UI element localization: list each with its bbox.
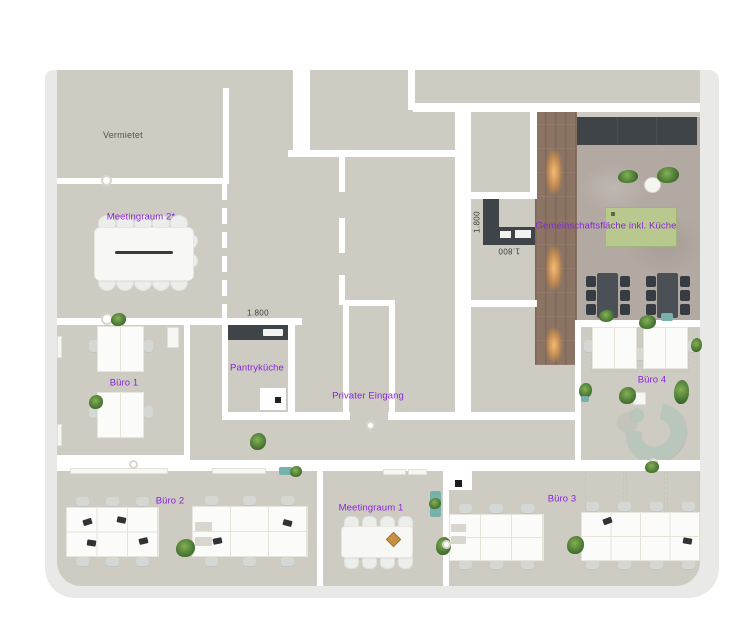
desk-pair — [98, 327, 143, 371]
floor-plan-page: Vermietet Meetingraum 2* Büro 1 — [0, 0, 754, 631]
plant — [111, 313, 126, 326]
window-sill — [57, 424, 62, 446]
window-sill — [408, 469, 427, 475]
room-label-meetingraum1: Meetingraum 1 — [339, 503, 404, 514]
vestibule-wall — [343, 300, 395, 306]
room-label-gemeinschaftsflaeche: Gemeinschaftsfläche inkl. Küche — [536, 221, 677, 232]
plant — [290, 466, 302, 477]
glass-wall-segment — [222, 208, 227, 224]
wall — [413, 103, 700, 112]
room-label-meetingraum2: Meetingraum 2* — [107, 212, 175, 223]
office-chair — [89, 340, 98, 353]
office-chair — [586, 560, 599, 570]
dark-chair — [646, 290, 656, 301]
office-chair — [243, 557, 256, 567]
desk-return — [195, 522, 212, 531]
core-wall-segment — [339, 157, 345, 192]
room-label-privater-eingang: Privater Eingang — [332, 391, 404, 402]
wall — [288, 150, 470, 157]
wall — [57, 318, 302, 325]
plant — [691, 338, 702, 352]
office-chair — [586, 502, 599, 512]
plant — [619, 387, 636, 404]
plant — [250, 433, 266, 450]
plant — [599, 310, 614, 322]
office-chair — [144, 406, 153, 419]
dark-chair — [620, 276, 630, 287]
desk-bank — [193, 507, 307, 556]
office-chair — [650, 560, 663, 570]
room-label-buero4: Büro 4 — [638, 375, 667, 386]
dark-chair — [586, 304, 596, 315]
kitchen-counter-top — [577, 117, 697, 145]
meeting-table — [342, 527, 412, 557]
office-chair — [76, 497, 89, 507]
door-knob — [101, 175, 112, 186]
door-knob — [442, 540, 451, 549]
pantry-sink — [263, 329, 283, 336]
window-sill — [57, 336, 62, 358]
office-chair — [618, 502, 631, 512]
window-sill — [70, 468, 168, 474]
plant — [674, 380, 689, 404]
ceiling-light-glow — [546, 150, 562, 194]
office-chair — [136, 497, 149, 507]
glass-wall-segment — [222, 232, 227, 248]
dimension-label-kitchen-vertical: 1.800 — [473, 211, 482, 233]
room-label-buero2: Büro 2 — [156, 496, 185, 507]
office-chair — [459, 560, 472, 570]
dark-chair — [646, 304, 656, 315]
floor-plan: Vermietet Meetingraum 2* Büro 1 — [45, 70, 719, 598]
dark-chair — [680, 290, 690, 301]
office-chair — [521, 560, 534, 570]
office-chair — [106, 497, 119, 507]
desk-bank — [67, 508, 158, 556]
office-chair — [136, 557, 149, 567]
table-cable-tray — [115, 251, 173, 254]
dark-chair — [586, 276, 596, 287]
desk-bank — [582, 513, 700, 560]
desk-return — [451, 524, 466, 532]
dark-chair — [586, 290, 596, 301]
office-chair — [650, 502, 663, 512]
plant — [567, 536, 584, 554]
kitchen-hob — [515, 230, 531, 238]
corridor-strip — [293, 70, 310, 152]
utility-box-dot — [275, 397, 281, 403]
room-label-vermietet: Vermietet — [103, 130, 143, 140]
side-table — [167, 327, 179, 348]
wall — [471, 192, 537, 199]
utility-box — [260, 388, 286, 410]
office-chair — [682, 502, 695, 512]
room-label-buero1: Büro 1 — [110, 378, 139, 389]
wall — [317, 460, 323, 586]
ceiling-light-glow — [546, 328, 562, 362]
dark-chair — [620, 304, 630, 315]
glass-wall-segment — [222, 256, 227, 272]
desk-return — [195, 537, 212, 546]
wall — [57, 178, 223, 184]
office-chair — [205, 496, 218, 506]
glass-wall-segment — [222, 184, 227, 200]
office-chair — [459, 504, 472, 514]
wall — [530, 110, 537, 192]
plant — [618, 170, 638, 183]
laptop — [683, 537, 693, 544]
wall — [471, 300, 537, 307]
plant — [176, 539, 195, 557]
dark-chair — [620, 290, 630, 301]
desk-pair — [644, 328, 687, 368]
plant — [639, 315, 656, 329]
office-chair — [281, 557, 294, 567]
door-knob — [366, 421, 375, 430]
conference-table — [95, 228, 193, 280]
dark-chair — [646, 276, 656, 287]
utility-box-dot — [455, 480, 462, 487]
office-chair — [76, 557, 89, 567]
dark-chair — [680, 304, 690, 315]
plant — [645, 461, 659, 473]
office-chair — [205, 557, 218, 567]
dimension-label-kitchen-flipped: 1.800 — [498, 247, 520, 256]
office-chair — [490, 504, 503, 514]
door-knob — [129, 460, 138, 469]
plant — [89, 395, 103, 409]
community-table — [657, 273, 678, 318]
plant — [657, 167, 679, 183]
room-label-buero3: Büro 3 — [548, 494, 577, 505]
teal-bench — [661, 313, 673, 321]
office-chair — [243, 496, 256, 506]
desk-return — [451, 536, 466, 544]
desk-pair — [593, 328, 636, 368]
office-chair — [521, 504, 534, 514]
glass-wall-segment — [222, 280, 227, 296]
wood-floor-strip — [535, 110, 577, 365]
office-chair — [618, 560, 631, 570]
wall — [222, 412, 580, 420]
dimension-label-pantry: 1.800 — [247, 309, 269, 318]
office-chair — [281, 496, 294, 506]
wall — [575, 320, 700, 327]
window-sill — [212, 468, 266, 474]
mat-dot — [611, 212, 615, 216]
kitchen-sink — [500, 231, 511, 238]
wall — [184, 325, 190, 458]
office-chair — [584, 340, 593, 353]
desk-pair — [98, 393, 143, 437]
plant-pot — [581, 396, 589, 402]
dark-chair — [680, 276, 690, 287]
ceiling-light-glow — [546, 246, 562, 290]
laptop — [87, 539, 97, 546]
curved-sofa-end — [629, 408, 644, 423]
core-wall-segment — [339, 218, 345, 253]
office-chair — [144, 340, 153, 353]
wall — [288, 325, 295, 420]
wall — [222, 325, 228, 420]
plant — [429, 498, 441, 509]
wall — [223, 88, 229, 184]
office-chair — [682, 560, 695, 570]
window-sill — [383, 469, 406, 475]
room-label-pantrykueche: Pantryküche — [230, 363, 284, 374]
office-chair — [106, 557, 119, 567]
office-chair — [490, 560, 503, 570]
